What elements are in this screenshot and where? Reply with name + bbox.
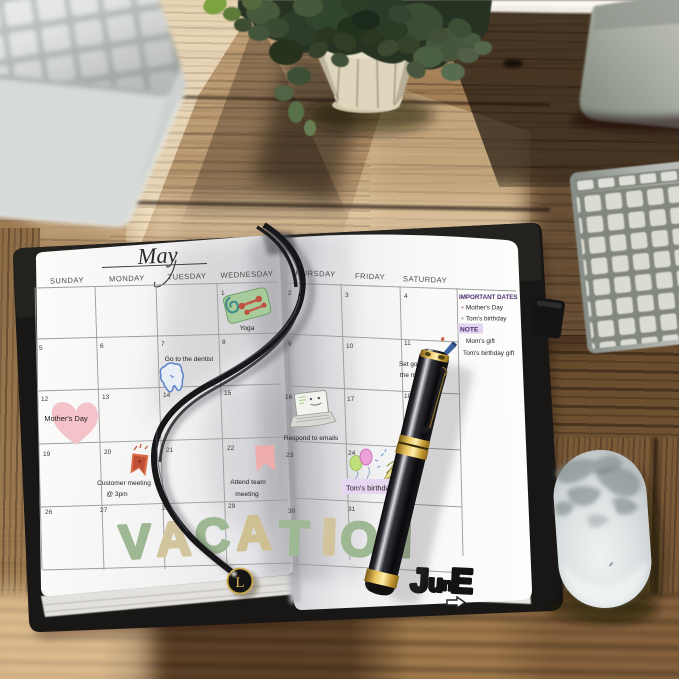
svg-text:WEDNESDAY: WEDNESDAY [220, 269, 273, 280]
svg-text:Respond to emails: Respond to emails [284, 435, 339, 442]
svg-text:E: E [450, 562, 475, 601]
svg-text:19: 19 [43, 451, 51, 458]
svg-text:31: 31 [348, 506, 356, 513]
svg-text:Tom's birthday: Tom's birthday [346, 484, 394, 493]
svg-text:27: 27 [100, 507, 108, 514]
svg-text:26: 26 [45, 509, 53, 516]
svg-text:12: 12 [41, 396, 49, 403]
svg-text:2: 2 [288, 290, 292, 297]
svg-text:16: 16 [285, 394, 293, 401]
svg-text:V: V [118, 515, 153, 570]
svg-text:13: 13 [102, 394, 110, 401]
svg-text:Customer meeting: Customer meeting [97, 480, 151, 487]
svg-text:4: 4 [404, 293, 408, 300]
svg-text:10: 10 [346, 343, 354, 350]
svg-text:TUESDAY: TUESDAY [167, 271, 206, 281]
svg-text:SATURDAY: SATURDAY [403, 274, 448, 285]
svg-text:6: 6 [100, 343, 104, 350]
svg-text:Tom's birthday: Tom's birthday [466, 316, 507, 323]
svg-text:SUNDAY: SUNDAY [50, 275, 84, 285]
svg-text:20: 20 [104, 449, 112, 456]
svg-text:17: 17 [347, 396, 355, 403]
svg-text:1: 1 [221, 290, 225, 297]
svg-text:I: I [322, 511, 337, 564]
svg-text:Mother's Day: Mother's Day [466, 305, 504, 312]
svg-text:11: 11 [404, 340, 411, 347]
svg-text:meeting: meeting [235, 491, 259, 498]
svg-text:5: 5 [39, 345, 43, 352]
svg-text:Yoga: Yoga [240, 325, 255, 332]
svg-text:14: 14 [163, 392, 171, 399]
svg-text:22: 22 [227, 445, 235, 452]
svg-text:A: A [236, 507, 273, 561]
svg-text:8: 8 [222, 339, 226, 346]
svg-text:@ 3pm: @ 3pm [106, 491, 128, 498]
svg-text:23: 23 [286, 452, 294, 459]
svg-text:Mother's Day: Mother's Day [44, 414, 88, 423]
svg-text:3: 3 [345, 292, 349, 299]
svg-text:NOTE: NOTE [460, 327, 479, 334]
svg-text:Tom's birthday gift: Tom's birthday gift [463, 350, 515, 357]
svg-text:FRIDAY: FRIDAY [355, 271, 386, 281]
svg-text:MONDAY: MONDAY [109, 273, 145, 283]
svg-text:Attend team: Attend team [230, 479, 266, 486]
svg-text:29: 29 [228, 503, 236, 510]
svg-text:IMPORTANT DATES: IMPORTANT DATES [459, 294, 518, 301]
svg-text:Go to the dentist: Go to the dentist [165, 356, 214, 363]
svg-text:7: 7 [161, 341, 165, 348]
svg-text:T: T [279, 512, 310, 566]
svg-text:L: L [235, 575, 244, 591]
svg-text:Mom's gift: Mom's gift [466, 338, 495, 345]
